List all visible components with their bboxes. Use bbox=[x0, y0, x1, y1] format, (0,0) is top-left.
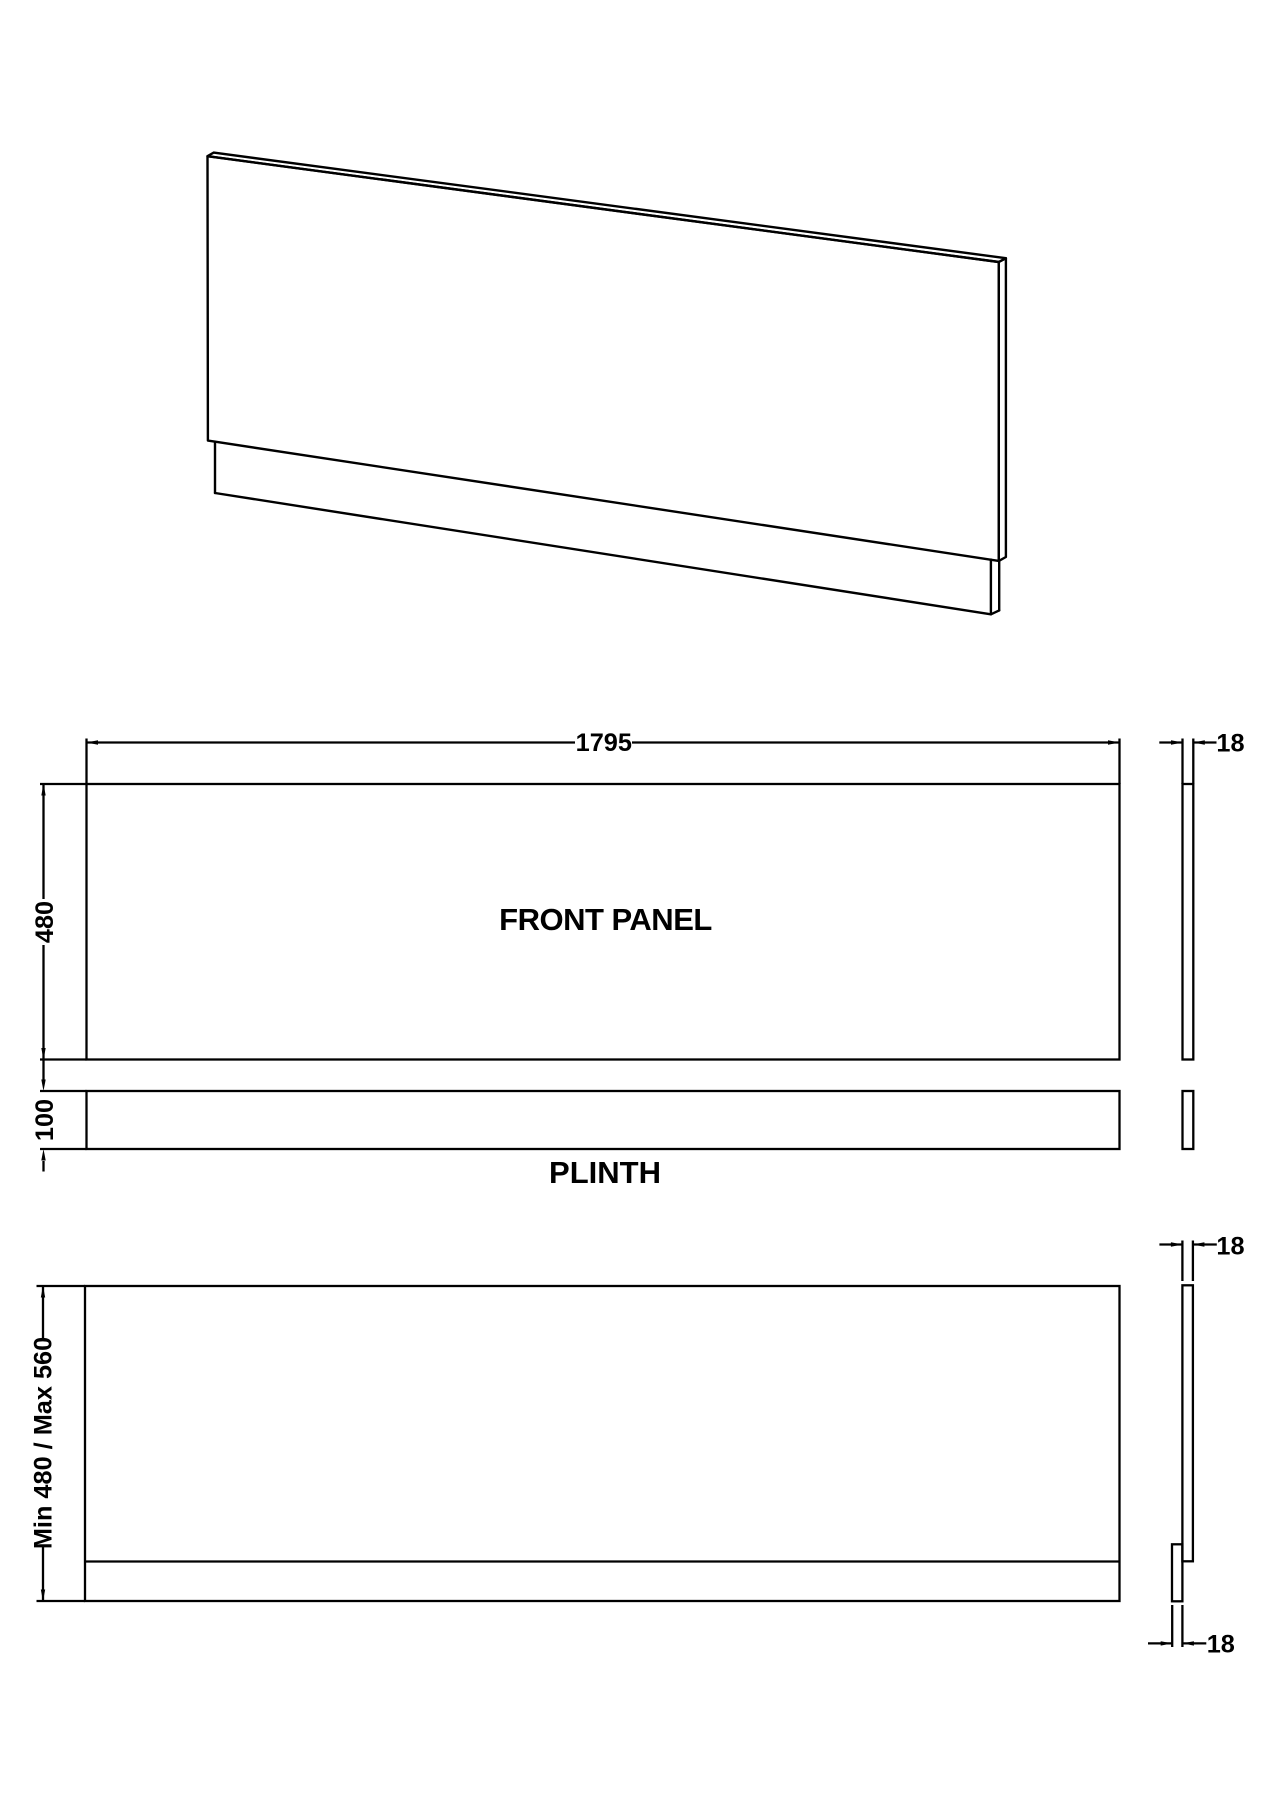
svg-text:1795: 1795 bbox=[576, 729, 632, 757]
svg-text:PLINTH: PLINTH bbox=[549, 1155, 661, 1190]
svg-text:18: 18 bbox=[1216, 1233, 1244, 1261]
svg-text:100: 100 bbox=[31, 1099, 59, 1141]
svg-text:480: 480 bbox=[31, 901, 59, 943]
svg-text:FRONT PANEL: FRONT PANEL bbox=[499, 902, 712, 937]
svg-text:18: 18 bbox=[1207, 1631, 1235, 1659]
svg-text:Min 480 / Max 560: Min 480 / Max 560 bbox=[30, 1337, 58, 1549]
svg-text:18: 18 bbox=[1216, 730, 1244, 758]
